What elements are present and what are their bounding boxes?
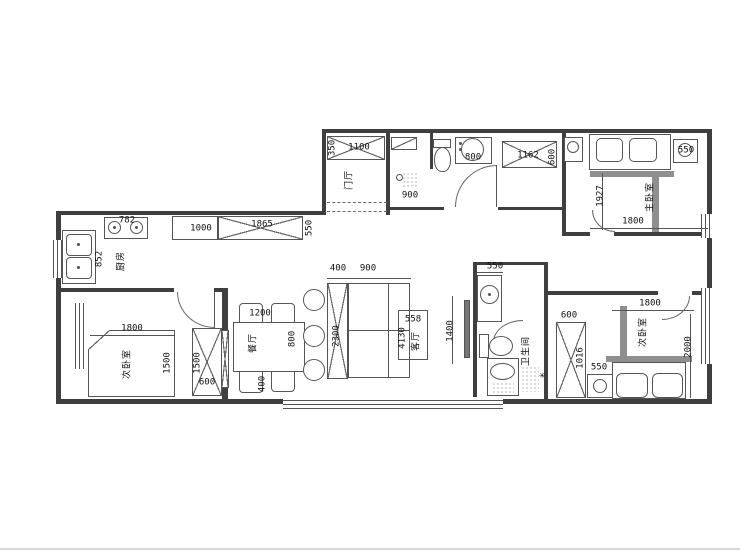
burner-dot-1 xyxy=(113,226,116,229)
sink-drain-2 xyxy=(77,266,80,269)
dim-bl-wardrobe-h: 1500 xyxy=(194,352,203,374)
bed-fold-left xyxy=(88,330,110,350)
dim-master-nightstand: 550 xyxy=(678,147,694,156)
dim-living-a: 558 xyxy=(405,316,421,325)
dim-stove-width: 782 xyxy=(119,217,135,226)
dim-sofa-length: 2300 xyxy=(333,325,342,347)
wall-hall-bottom-left xyxy=(386,207,444,210)
dim-sofa-chaise: 400 xyxy=(330,265,346,274)
wall-top xyxy=(322,129,712,133)
dim-living-b: 4130 xyxy=(399,327,408,349)
dim-br-wardrobe-h: 1016 xyxy=(577,347,586,369)
shower-icon: ✳ xyxy=(539,371,545,381)
toilet-tank xyxy=(479,334,489,358)
dim-br-depth: 2000 xyxy=(685,336,694,358)
canvas-bottom-edge xyxy=(0,548,740,550)
dimline-bath-niche xyxy=(477,272,503,273)
dim-bl-wardrobe-w: 600 xyxy=(199,379,215,388)
dim-table-width: 1200 xyxy=(249,310,271,319)
master-pillow-1 xyxy=(596,138,623,162)
dim-table-depth: 800 xyxy=(289,331,298,347)
dim-master-depth: 1927 xyxy=(597,185,606,207)
br-pillow-2 xyxy=(652,373,683,398)
dining-chair-2 xyxy=(271,303,295,323)
toilet-icon xyxy=(489,336,513,356)
wall-master-bottom-a xyxy=(562,232,590,236)
floorplan-canvas: 1100 350 门厅 900 800 1162 600 550 1927 18… xyxy=(0,0,740,555)
wall-hall-bottom-right xyxy=(498,207,564,210)
door-arc-bedroom-left xyxy=(177,292,215,328)
window-right-upper xyxy=(701,214,713,238)
tv-icon xyxy=(464,300,470,358)
room-label-bathroom: 卫生间 xyxy=(523,336,532,366)
window-living-bottom xyxy=(283,397,503,409)
dim-vanity-width: 800 xyxy=(465,154,481,163)
dim-cabinet-a: 1000 xyxy=(190,225,212,234)
room-label-entry: 门厅 xyxy=(346,170,355,190)
door-leaf-bedroom-left xyxy=(214,292,215,328)
dining-chair-4 xyxy=(271,371,295,392)
wall-bedroom-right-top-a xyxy=(548,291,658,295)
dim-bath-niche: 550 xyxy=(487,263,503,272)
pouf-icon-2 xyxy=(303,325,325,347)
dim-master-width: 1800 xyxy=(622,218,644,227)
room-label-bedroom-left: 次卧室 xyxy=(124,349,133,379)
dim-cabinet-depth: 550 xyxy=(306,220,315,236)
master-pillow-2 xyxy=(629,138,657,162)
dim-top-window-height: 600 xyxy=(549,149,558,165)
room-label-dining: 餐厅 xyxy=(250,333,259,353)
wall-bath-right xyxy=(544,262,548,402)
dim-cabinet-b: 1865 xyxy=(251,221,273,230)
wall-master-bottom-b xyxy=(614,232,712,236)
shower-mat xyxy=(521,366,539,392)
lamp-icon-master-left xyxy=(567,141,579,153)
wall-corridor-top xyxy=(56,211,326,215)
dim-entry-closet-width: 1100 xyxy=(348,144,370,153)
vanity-mat xyxy=(492,382,514,394)
hall-shelf xyxy=(391,137,417,150)
br-pillow-1 xyxy=(616,373,648,398)
dim-entry-closet-depth: 350 xyxy=(329,140,338,156)
bath-basin-icon xyxy=(490,363,515,380)
dim-sofa-width: 900 xyxy=(360,265,376,274)
dim-bl-width: 1800 xyxy=(121,325,143,334)
toilet-icon-top xyxy=(434,147,451,172)
dim-tv-width: 1400 xyxy=(447,320,456,342)
dimline-sofa-top xyxy=(327,278,411,279)
door-arc-top-bath xyxy=(455,165,497,207)
column-dining-wall xyxy=(221,330,229,388)
room-label-kitchen: 厨房 xyxy=(118,251,127,271)
room-label-living: 客厅 xyxy=(413,331,422,351)
window-bedroom-left xyxy=(75,303,87,369)
sink-drain-1 xyxy=(77,243,80,246)
dim-br-wardrobe-w: 600 xyxy=(561,312,577,321)
window-right-lower xyxy=(701,288,713,364)
lamp-icon-bedroom-right xyxy=(593,379,607,393)
dimline-bl-1800 xyxy=(90,335,174,336)
sofa-cushion-divider-v xyxy=(388,283,389,378)
dim-br-width: 1800 xyxy=(639,300,661,309)
dim-top-window-width: 1162 xyxy=(517,152,539,161)
dim-sink-run: 852 xyxy=(96,251,105,267)
room-label-bedroom-right: 次卧室 xyxy=(640,317,649,347)
dim-bl-bed: 1500 xyxy=(164,352,173,374)
dashed-entry-threshold-2 xyxy=(327,211,387,212)
washer-dot xyxy=(488,293,491,296)
door-arc-bedroom-right xyxy=(662,296,690,320)
dim-dining-gap: 400 xyxy=(259,376,268,392)
dim-hall-width: 900 xyxy=(402,192,418,201)
wall-entry-left xyxy=(322,129,326,215)
pouf-icon-1 xyxy=(303,289,325,311)
wall-hall-bath-divider xyxy=(430,129,433,169)
room-label-master: 主卧室 xyxy=(647,182,656,212)
burner-dot-2 xyxy=(135,226,138,229)
faucet-dot-1 xyxy=(459,142,462,145)
hall-floor-mat xyxy=(402,172,417,187)
dim-br-nightstand: 550 xyxy=(591,364,607,373)
wall-bath-top xyxy=(473,262,548,265)
dashed-entry-threshold-1 xyxy=(327,202,387,203)
wall-bedroom-left-top-a xyxy=(56,288,174,292)
door-leaf-top-bath xyxy=(496,165,497,207)
pouf-icon-3 xyxy=(303,359,325,381)
faucet-dot-2 xyxy=(459,148,462,151)
